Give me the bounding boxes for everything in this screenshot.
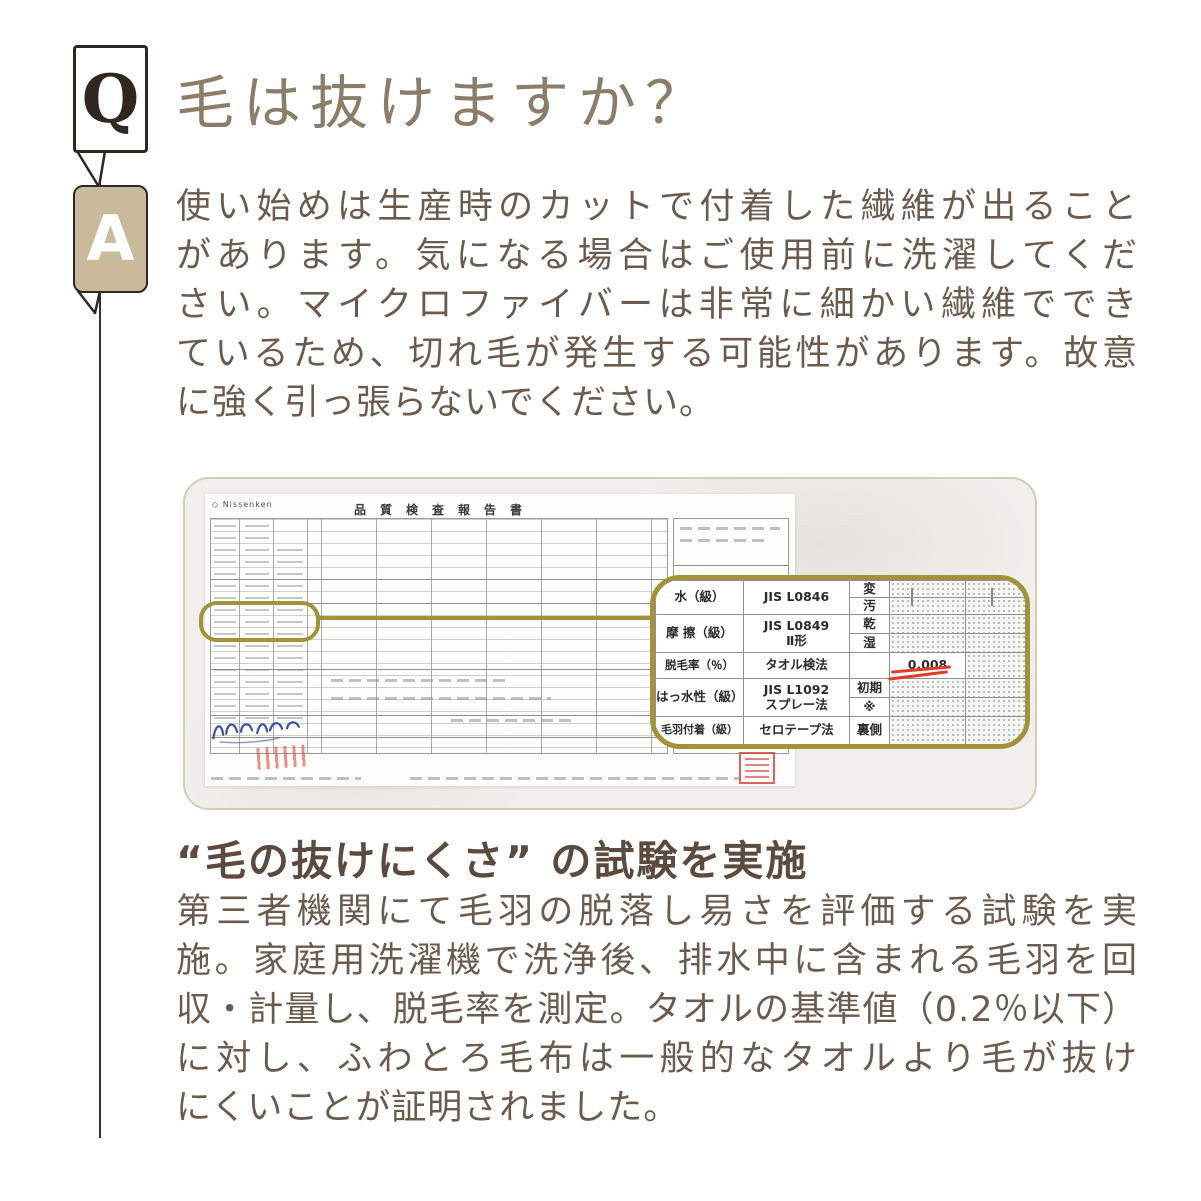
answer-text: 使い始めは生産時のカットで付着した繊維が出ること があります。気になる場合はご使… — [176, 183, 1138, 428]
test-method-line: JIS L1092 — [744, 683, 849, 697]
test-item: 脱毛率（％） — [656, 653, 744, 679]
answer-badge: A — [73, 185, 148, 293]
test-sub-label: 初期 — [850, 679, 890, 698]
fine-print — [211, 777, 361, 780]
question-badge-label: Q — [82, 66, 140, 132]
result-cell — [890, 581, 966, 598]
answer-line: があります。気になる場合はご使用前に洗濯してくだ — [176, 232, 1138, 281]
test-sub-label: 乾 — [850, 615, 890, 634]
red-seal-stamp — [739, 752, 775, 784]
test-method: JIS L0849 Ⅱ形 — [744, 615, 850, 653]
test-method-line: JIS L0849 — [744, 619, 849, 633]
result-cell — [890, 634, 966, 653]
test-item: 毛羽付着（級） — [656, 717, 744, 745]
test-item: 水（級） — [656, 581, 744, 615]
test-method-line: Ⅱ形 — [744, 634, 849, 648]
report-highlight-box — [199, 601, 320, 642]
test-method: JIS L1092 スプレー法 — [744, 679, 850, 717]
qa-section: Q 毛は抜けますか？ A 使い始めは生産時のカットで付着した繊維が出ること があ… — [0, 0, 1201, 1201]
result-cell — [890, 679, 966, 698]
answer-line: 使い始めは生産時のカットで付着した繊維が出ること — [176, 183, 1138, 232]
test-sub-label: 汚 — [850, 598, 890, 615]
result-text: 第三者機関にて毛羽の脱落し易さを評価する試験を実 施。家庭用洗濯機で洗浄後、排水… — [176, 888, 1138, 1133]
inspection-report-figure: ◇ Nissenken 品質検査報告書 — [183, 477, 1037, 810]
answer-badge-tail — [75, 290, 105, 320]
callout-connector-line — [317, 616, 655, 620]
result-line: 収・計量し、脱毛率を測定。タオルの基準値（0.2％以下） — [176, 986, 1138, 1035]
result-cell — [966, 717, 1026, 745]
tick-mark — [911, 588, 913, 606]
result-line: にくいことが証明されました。 — [176, 1084, 1138, 1133]
test-sub-label: 変 — [850, 581, 890, 598]
answer-line: に強く引っ張らないでください。 — [176, 379, 1138, 428]
report-zoom-callout: 水（級） JIS L0846 変 汚 摩 擦（級） JIS L0849 Ⅱ形 — [650, 575, 1030, 749]
result-heading: “毛の抜けにくさ” の試験を実施 — [176, 827, 808, 887]
report-title: 品質検査報告書 — [245, 501, 645, 518]
test-method: セロテープ法 — [744, 717, 850, 745]
tick-mark — [991, 588, 993, 606]
result-cell — [890, 615, 966, 634]
result-line: 施。家庭用洗濯機で洗浄後、排水中に含まれる毛羽を回 — [176, 937, 1138, 986]
result-cell — [966, 679, 1026, 698]
result-cell — [966, 653, 1026, 679]
result-cell — [890, 598, 966, 615]
red-date-stamp — [256, 744, 309, 770]
test-method-line: スプレー法 — [744, 698, 849, 712]
test-sub-label: 裏側 — [850, 717, 890, 745]
test-sub-label: 湿 — [850, 634, 890, 653]
answer-badge-label: A — [87, 208, 135, 270]
test-item: はっ水性（級） — [656, 679, 744, 717]
result-cell — [966, 634, 1026, 653]
question-title: 毛は抜けますか？ — [176, 56, 712, 140]
result-cell — [966, 598, 1026, 615]
handwritten-note — [208, 714, 305, 747]
result-line: に対し、ふわとろ毛布は一般的なタオルより毛が抜け — [176, 1035, 1138, 1084]
result-cell — [966, 698, 1026, 717]
question-badge: Q — [73, 45, 148, 153]
answer-line: ているため、切れ毛が発生する可能性があります。故意 — [176, 330, 1138, 379]
result-line: 第三者機関にて毛羽の脱落し易さを評価する試験を実 — [176, 888, 1138, 937]
fine-print — [410, 777, 740, 780]
test-results-table: 水（級） JIS L0846 変 汚 摩 擦（級） JIS L0849 Ⅱ形 — [655, 580, 1026, 745]
result-cell — [890, 717, 966, 745]
test-sub-label — [850, 653, 890, 679]
test-sub-label: ※ — [850, 698, 890, 717]
result-cell — [966, 581, 1026, 598]
test-item: 摩 擦（級） — [656, 615, 744, 653]
test-method: タオル検法 — [744, 653, 850, 679]
test-method: JIS L0846 — [744, 581, 850, 615]
result-cell — [890, 698, 966, 717]
result-cell — [966, 615, 1026, 634]
answer-line: さい。マイクロファイバーは非常に細かい繊維ででき — [176, 281, 1138, 330]
